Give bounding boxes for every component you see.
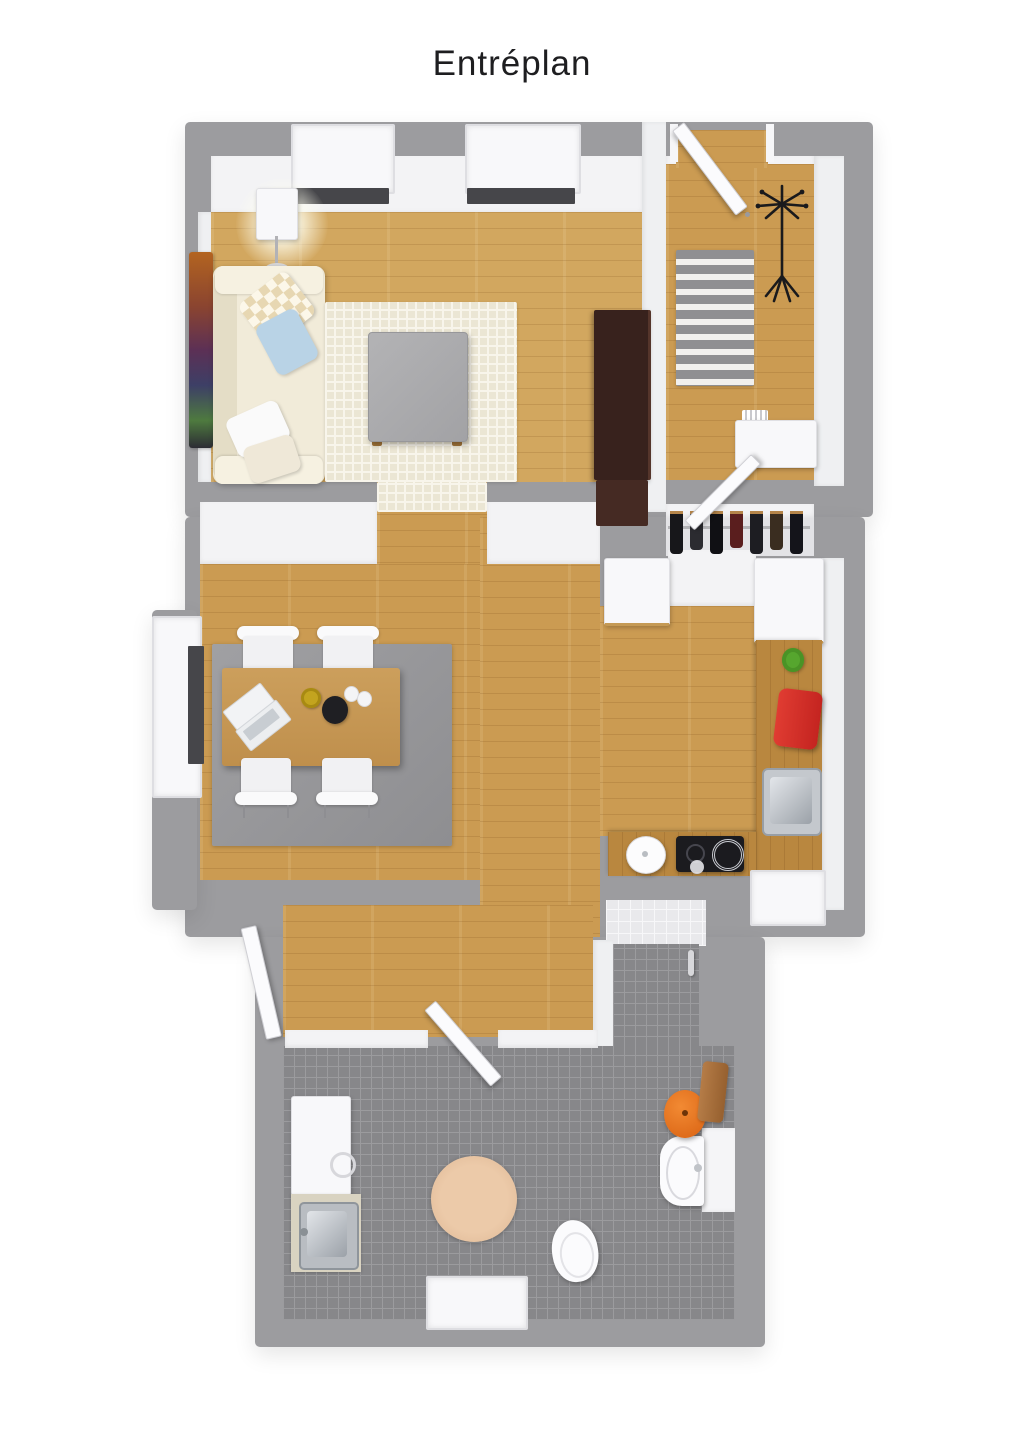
orange-stool-dot [682, 1110, 688, 1116]
espresso-cabinet-2 [596, 480, 648, 526]
dining-north-wall-left [200, 502, 377, 564]
hall-east-wall [814, 156, 844, 486]
living-window-2 [465, 124, 581, 194]
dining-north-wall-right [487, 502, 600, 564]
kitchen-tall-cabinet-right [754, 558, 824, 644]
glass-cup [690, 860, 704, 874]
dining-chair-4 [316, 758, 378, 818]
floor-plan-canvas: Entréplan [0, 0, 1024, 1448]
kitchen-window [750, 870, 826, 926]
living-window-2-sill [467, 188, 575, 204]
page-title: Entréplan [0, 44, 1024, 84]
garment [790, 511, 803, 554]
wall-art [189, 252, 213, 448]
garment [710, 511, 723, 554]
garment [770, 511, 783, 550]
coat-rack-icon [752, 180, 812, 305]
red-breadbox [773, 688, 824, 751]
entrance-jamb-right [766, 124, 774, 162]
green-utensil-pot [782, 648, 804, 672]
dining-window-sill [188, 646, 204, 764]
living-rug-extension [377, 482, 487, 512]
yellow-bowl [301, 688, 321, 708]
shower-floor [613, 944, 699, 1048]
kitchen-floor [600, 606, 756, 836]
kitchen-tall-cabinet-left [604, 558, 670, 626]
bathroom-north-wall-right [498, 1030, 598, 1048]
cooktop-burner-large [712, 839, 744, 871]
black-kettle [322, 696, 348, 724]
kitchen-east-wall [822, 558, 844, 910]
entrance-door-handle [745, 212, 750, 217]
garment [730, 511, 743, 548]
bathroom-sink-faucet [694, 1164, 702, 1172]
bathroom-round-rug [431, 1156, 517, 1242]
cup-2 [357, 691, 372, 707]
shower-north-wall [606, 900, 706, 946]
bathroom-window [426, 1276, 528, 1330]
espresso-cabinet [594, 310, 651, 480]
kitchen-back-wall [668, 550, 756, 606]
floor-lamp-pole [275, 236, 278, 266]
floor-lamp-shade [256, 188, 298, 240]
bathroom-sink-basin [666, 1146, 700, 1200]
garment [670, 511, 683, 554]
living-window-1 [291, 124, 395, 194]
dining-chair-3 [235, 758, 297, 818]
bathroom-sink-shelf [702, 1128, 735, 1212]
washing-machine [291, 1096, 351, 1196]
coffee-table [368, 332, 468, 442]
shower-handle [688, 950, 694, 976]
bathroom-north-wall-left [285, 1030, 428, 1048]
laundry-sink-faucet [300, 1228, 308, 1236]
white-pot-lid-handle [642, 851, 648, 857]
washing-machine-door [330, 1152, 356, 1178]
kitchen-sink-basin [770, 777, 812, 824]
sofa-backrest [213, 272, 237, 478]
corridor-floor [480, 517, 600, 937]
laundry-sink-basin [307, 1211, 347, 1257]
garment [750, 511, 763, 554]
striped-runner-rug [676, 250, 754, 386]
